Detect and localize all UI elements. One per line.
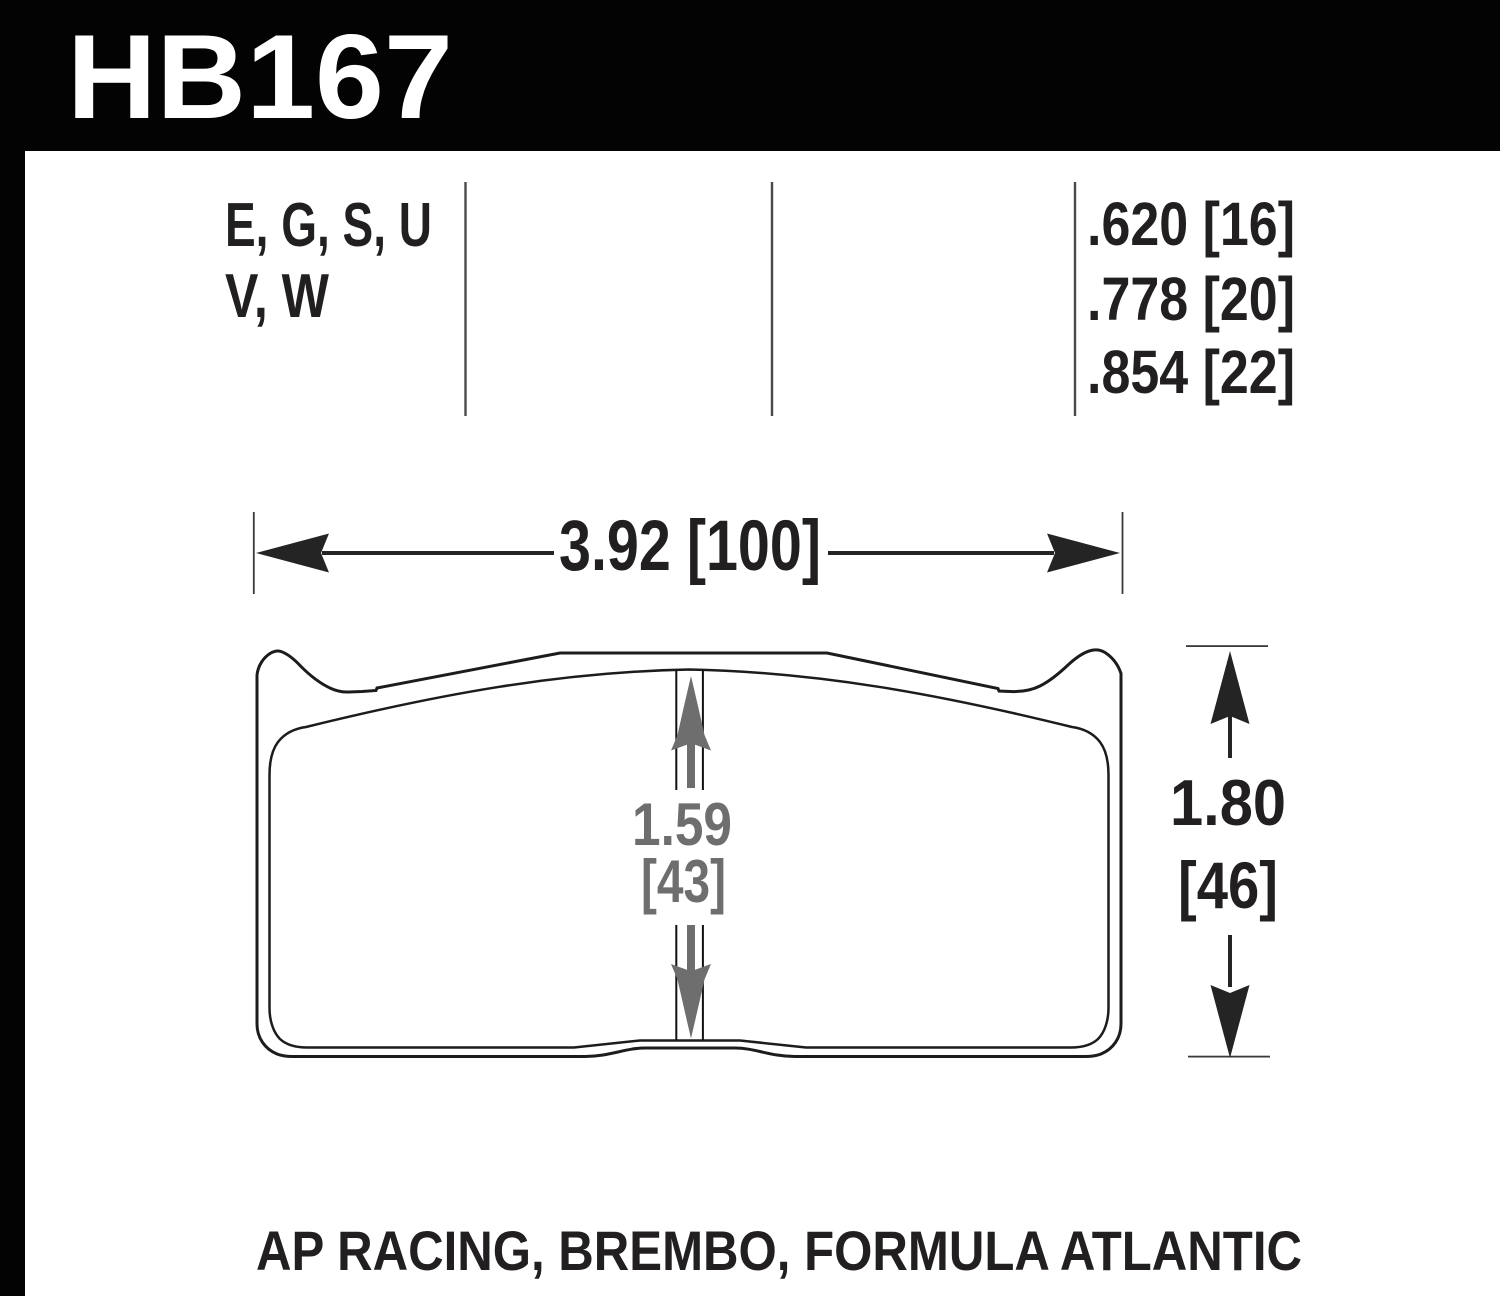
svg-text:[46]: [46] — [1178, 848, 1278, 922]
svg-text:AP RACING, BREMBO, FORMULA ATL: AP RACING, BREMBO, FORMULA ATLANTIC — [256, 1219, 1302, 1282]
svg-text:.854 [22]: .854 [22] — [1087, 338, 1295, 406]
svg-text:[43]: [43] — [641, 848, 726, 915]
svg-text:3.92 [100]: 3.92 [100] — [559, 507, 821, 586]
svg-text:E, G, S, U: E, G, S, U — [225, 191, 432, 260]
svg-text:.778 [20]: .778 [20] — [1087, 265, 1295, 333]
svg-text:.620 [16]: .620 [16] — [1087, 190, 1295, 258]
svg-text:1.80: 1.80 — [1170, 766, 1286, 839]
svg-text:HB167: HB167 — [67, 10, 453, 144]
svg-text:V, W: V, W — [225, 262, 329, 331]
